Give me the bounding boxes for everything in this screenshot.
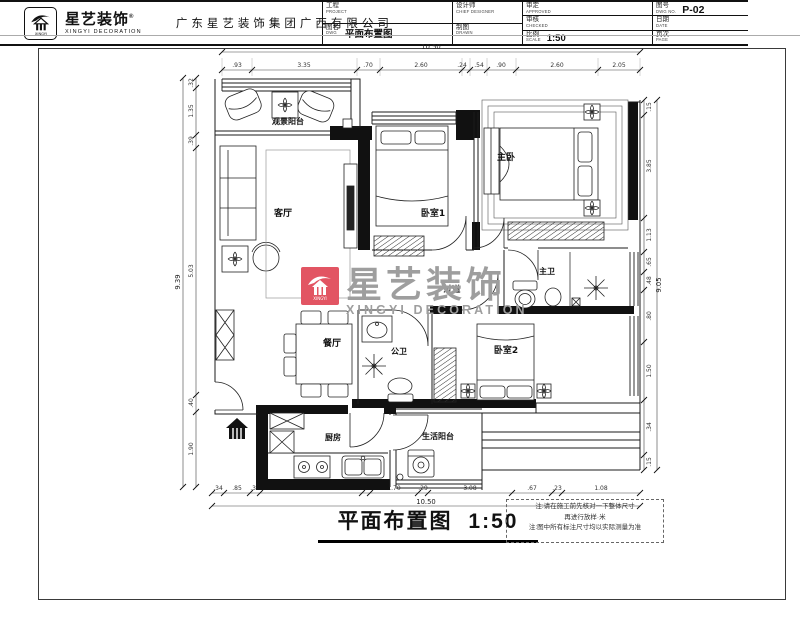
dim: .34	[646, 422, 653, 432]
dim: .48	[646, 276, 653, 286]
dim: .85	[232, 485, 242, 492]
dim: .70	[363, 62, 373, 69]
note-box: 注:请在施工前先核对一下整体尺寸 再进行放样·米 注:图中所有标注尺寸均以实际测…	[506, 499, 664, 543]
watermark: XINGYI 星艺装饰 XINGYI DECORATION	[301, 267, 528, 317]
floor-plan-svg: 10.50 .93 3.35 .70 2.60 .24 .54 .90 2.60…	[0, 0, 800, 640]
balcony-chair	[223, 87, 264, 123]
dim: .15	[646, 457, 653, 467]
room-label-master-bath: 主卫	[539, 266, 555, 276]
dim: 1.13	[646, 228, 653, 242]
dim: 3.08	[463, 485, 477, 492]
dim: .34	[213, 485, 223, 492]
room-label-balcony-view: 观景阳台	[272, 116, 304, 126]
dim: .67	[527, 485, 537, 492]
dim-right-total: 9.05	[655, 277, 663, 292]
sofa	[220, 146, 256, 240]
dim: .65	[646, 257, 653, 267]
dim-left-total: 9.39	[174, 274, 182, 289]
entrance-marker-icon	[226, 418, 248, 439]
room-label-guest-bath: 公卫	[391, 347, 407, 356]
watermark-en: XINGYI DECORATION	[346, 304, 528, 317]
toilet-guest	[388, 394, 413, 402]
dim: .39	[188, 136, 195, 146]
room-label-utility: 生活阳台	[422, 431, 454, 441]
watermark-cn: 星艺装饰	[346, 267, 528, 303]
dim: .80	[646, 311, 653, 321]
dim: 1.50	[646, 364, 653, 378]
dim: 1.35	[188, 104, 195, 118]
dim: .40	[188, 398, 195, 408]
dim: .93	[232, 62, 242, 69]
dim: .32	[188, 78, 195, 88]
room-label-kitchen: 厨房	[325, 432, 341, 442]
hall-cabinet	[216, 310, 234, 360]
shower-spray-icon	[584, 276, 608, 300]
room-label-bed2: 卧室2	[494, 344, 518, 356]
xingyi-logo-icon: XINGYI	[301, 267, 339, 305]
plan-title: 平面布置图 1:50	[318, 505, 538, 543]
basin-master	[545, 288, 561, 306]
dim: 1.90	[188, 442, 195, 456]
room-label-living: 客厅	[273, 207, 292, 219]
dim: 2.05	[612, 62, 626, 69]
tv	[347, 186, 354, 230]
room-label-bed1: 卧室1	[421, 207, 445, 219]
wardrobe-bed2	[434, 348, 456, 402]
shower-spray-icon	[362, 354, 386, 378]
dim: 3.35	[297, 62, 311, 69]
dim: 2.60	[550, 62, 564, 69]
dim: 2.60	[414, 62, 428, 69]
logo-mark-text: XINGYI	[313, 296, 326, 301]
room-label-master: 主卧	[497, 151, 515, 163]
dim: .23	[552, 485, 562, 492]
dim: 3.85	[646, 159, 653, 173]
note-line: 注:请在施工前先核对一下整体尺寸	[511, 502, 659, 513]
dim: 1.08	[594, 485, 608, 492]
note-line: 再进行放样·米	[511, 513, 659, 524]
plan-title-text: 平面布置图	[338, 510, 453, 533]
dim-top-total: 10.50	[421, 43, 440, 51]
drawing-page: 10.50 .93 3.35 .70 2.60 .24 .54 .90 2.60…	[0, 0, 800, 640]
note-line: 注:图中所有标注尺寸均以实际测量为准	[511, 523, 659, 534]
wardrobe-bed1	[374, 236, 424, 256]
dim: 5.03	[188, 264, 195, 278]
dim: .15	[646, 102, 653, 112]
dim: .90	[496, 62, 506, 69]
stove	[294, 456, 330, 478]
room-label-dining: 餐厅	[322, 337, 341, 349]
wardrobe-master	[508, 222, 604, 240]
dim: .54	[474, 62, 484, 69]
dim: .24	[457, 62, 467, 69]
dim: .29	[418, 485, 428, 492]
dining-table	[296, 324, 352, 384]
